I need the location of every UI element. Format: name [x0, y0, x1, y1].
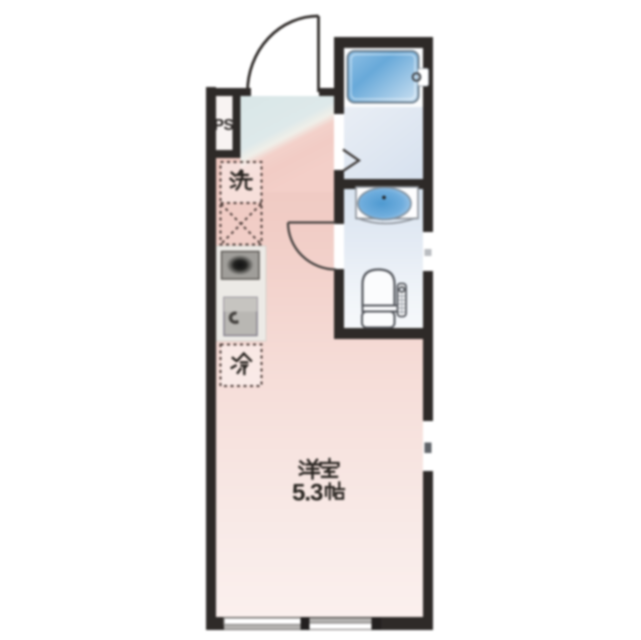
- svg-text:5.3: 5.3: [292, 480, 323, 507]
- svg-text:PS: PS: [214, 117, 234, 134]
